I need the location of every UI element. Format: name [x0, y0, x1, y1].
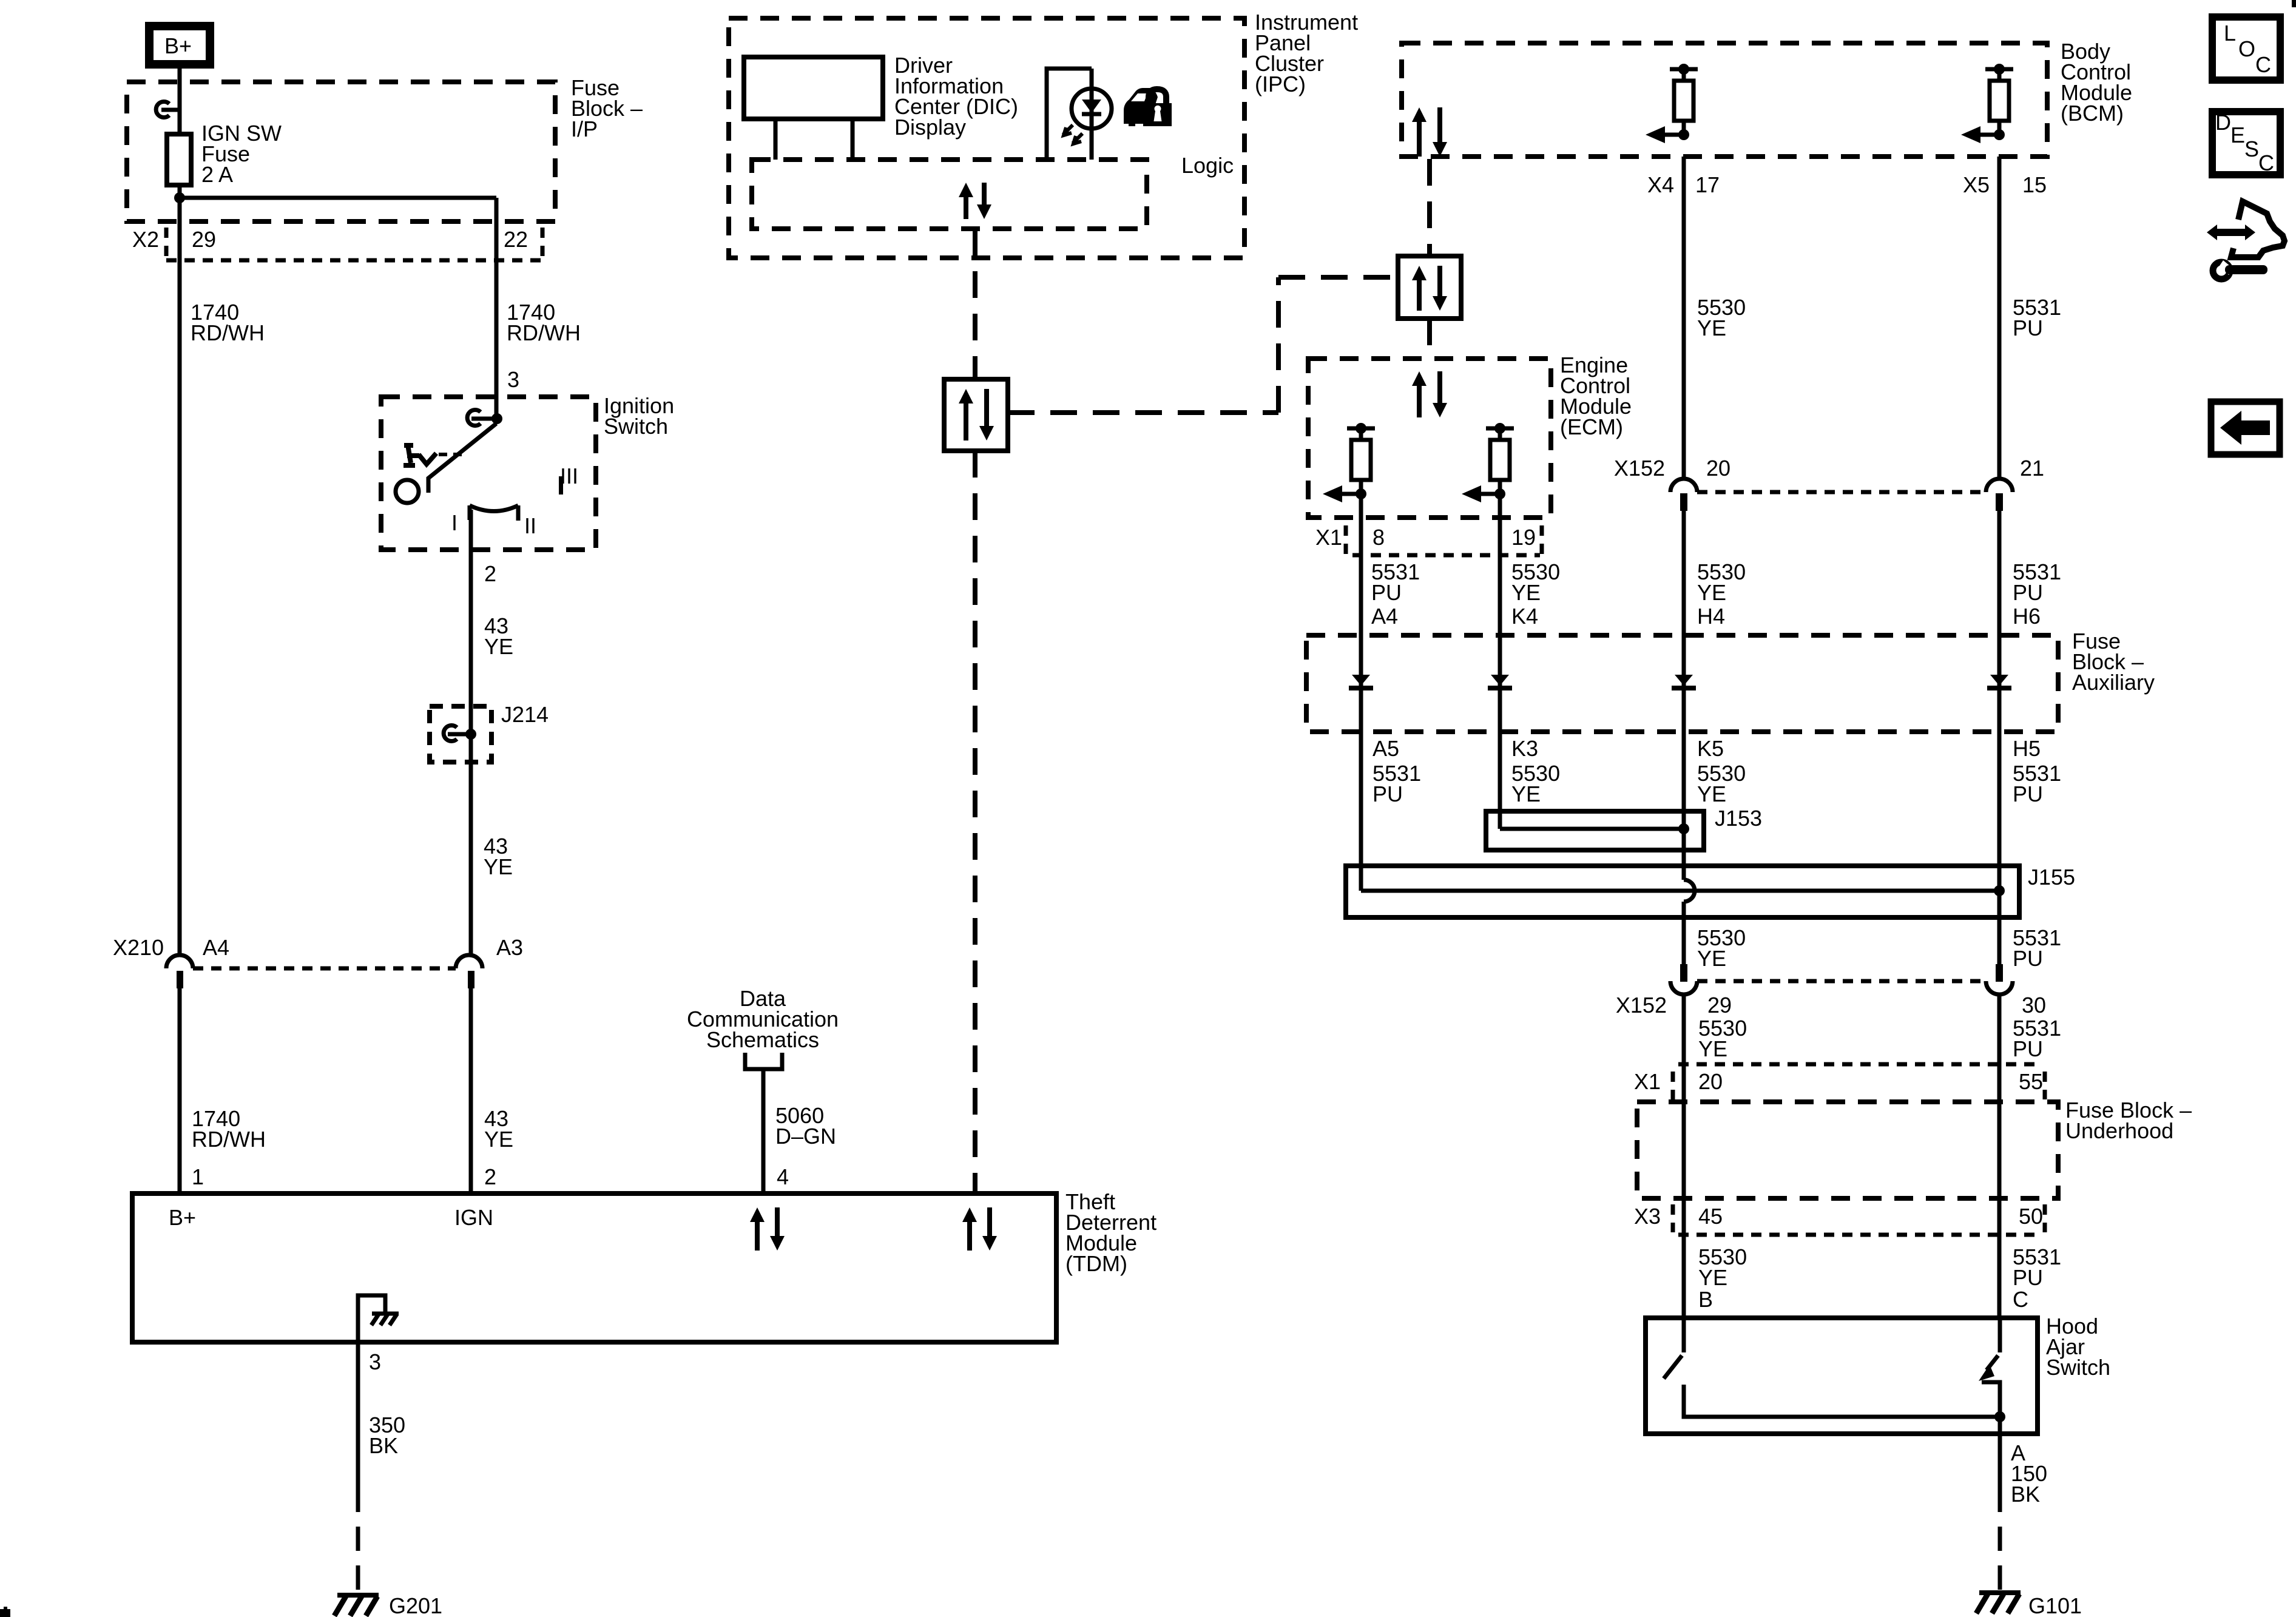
- svg-text:S: S: [2244, 137, 2259, 161]
- svg-text:YE: YE: [484, 1127, 513, 1152]
- svg-text:H4: H4: [1697, 604, 1725, 629]
- svg-text:A4: A4: [1371, 604, 1398, 629]
- svg-text:BK: BK: [2011, 1482, 2040, 1507]
- svg-text:50: 50: [2019, 1204, 2043, 1229]
- svg-text:PU: PU: [2013, 946, 2043, 971]
- svg-text:45: 45: [1698, 1204, 1723, 1229]
- svg-text:K4: K4: [1511, 604, 1538, 629]
- svg-text:H5: H5: [2013, 736, 2041, 761]
- svg-text:PU: PU: [2013, 1036, 2043, 1061]
- svg-text:X152: X152: [1614, 456, 1665, 481]
- svg-text:X210: X210: [113, 935, 164, 960]
- svg-text:20: 20: [1698, 1069, 1723, 1094]
- svg-text:RD/WH: RD/WH: [191, 320, 265, 345]
- svg-text:PU: PU: [1371, 580, 1402, 605]
- svg-text:X1: X1: [1634, 1069, 1661, 1094]
- svg-text:PU: PU: [2013, 1265, 2043, 1290]
- svg-text:O: O: [2238, 36, 2255, 61]
- svg-text:Auxiliary: Auxiliary: [2072, 670, 2155, 695]
- svg-text:I: I: [451, 510, 458, 535]
- svg-text:3: 3: [369, 1349, 381, 1374]
- svg-text:E: E: [2230, 123, 2245, 147]
- svg-text:2: 2: [484, 561, 496, 586]
- svg-text:Switch: Switch: [2046, 1355, 2110, 1380]
- svg-text:Switch: Switch: [604, 414, 668, 439]
- svg-text:L: L: [2224, 21, 2236, 46]
- svg-text:1: 1: [192, 1164, 204, 1189]
- svg-text:Underhood: Underhood: [2065, 1118, 2173, 1143]
- svg-text:C: C: [2258, 150, 2274, 175]
- svg-text:21: 21: [2020, 456, 2044, 481]
- svg-text:19: 19: [1511, 525, 1536, 550]
- svg-text:A3: A3: [496, 935, 523, 960]
- svg-text:PU: PU: [2013, 580, 2043, 605]
- svg-text:C: C: [2013, 1287, 2028, 1312]
- svg-text:(BCM): (BCM): [2061, 101, 2124, 126]
- svg-text:D–GN: D–GN: [775, 1124, 836, 1149]
- svg-text:2: 2: [484, 1164, 496, 1189]
- svg-text:(IPC): (IPC): [1255, 72, 1306, 96]
- svg-text:55: 55: [2019, 1069, 2043, 1094]
- svg-text:I/P: I/P: [571, 116, 598, 141]
- svg-text:Schematics: Schematics: [706, 1027, 819, 1052]
- svg-text:G101: G101: [2028, 1593, 2082, 1617]
- svg-text:29: 29: [1707, 993, 1732, 1018]
- svg-text:PU: PU: [1373, 781, 1403, 806]
- svg-text:30: 30: [2022, 993, 2046, 1018]
- svg-text:X5: X5: [1963, 172, 1990, 197]
- svg-text:22: 22: [504, 227, 528, 252]
- svg-text:29: 29: [192, 227, 216, 252]
- svg-text:(ECM): (ECM): [1560, 414, 1623, 439]
- svg-text:YE: YE: [1697, 580, 1726, 605]
- svg-text:B: B: [1698, 1287, 1713, 1312]
- svg-text:YE: YE: [1697, 316, 1726, 340]
- svg-text:17: 17: [1695, 172, 1720, 197]
- svg-text:G201: G201: [389, 1593, 442, 1617]
- svg-text:A5: A5: [1373, 736, 1399, 761]
- svg-text:YE: YE: [1511, 580, 1541, 605]
- svg-text:II: II: [524, 513, 536, 538]
- svg-text:K3: K3: [1511, 736, 1538, 761]
- svg-text:20: 20: [1706, 456, 1730, 481]
- svg-text:YE: YE: [484, 854, 513, 879]
- svg-text:A4: A4: [203, 935, 229, 960]
- svg-text:B+: B+: [164, 33, 192, 58]
- svg-text:YE: YE: [1511, 781, 1541, 806]
- svg-text:2 A: 2 A: [201, 162, 233, 187]
- svg-text:YE: YE: [1697, 946, 1726, 971]
- svg-text:IGN: IGN: [454, 1205, 493, 1230]
- svg-text:J153: J153: [1715, 806, 1762, 831]
- svg-text:K5: K5: [1697, 736, 1724, 761]
- svg-text:BK: BK: [369, 1433, 398, 1458]
- svg-text:C: C: [2255, 52, 2271, 77]
- svg-text:H6: H6: [2013, 604, 2041, 629]
- svg-text:B+: B+: [169, 1205, 196, 1230]
- svg-text:Logic: Logic: [1181, 153, 1234, 178]
- svg-text:YE: YE: [1697, 781, 1726, 806]
- svg-text:J155: J155: [2028, 865, 2075, 890]
- svg-text:X1: X1: [1315, 525, 1342, 550]
- svg-text:YE: YE: [1698, 1036, 1727, 1061]
- svg-text:J214: J214: [501, 702, 549, 727]
- svg-text:15: 15: [2022, 172, 2047, 197]
- svg-text:PU: PU: [2013, 316, 2043, 340]
- svg-text:X4: X4: [1647, 172, 1674, 197]
- svg-text:4: 4: [777, 1164, 789, 1189]
- svg-text:8: 8: [1373, 525, 1385, 550]
- svg-text:RD/WH: RD/WH: [507, 320, 581, 345]
- svg-text:RD/WH: RD/WH: [192, 1127, 266, 1152]
- svg-text:PU: PU: [2013, 781, 2043, 806]
- svg-text:YE: YE: [484, 634, 513, 659]
- svg-text:3: 3: [507, 367, 519, 392]
- svg-text:YE: YE: [1698, 1265, 1727, 1290]
- svg-text:X3: X3: [1634, 1204, 1661, 1229]
- svg-text:X152: X152: [1616, 993, 1667, 1018]
- svg-text:D: D: [2215, 110, 2231, 135]
- svg-text:Display: Display: [894, 115, 966, 140]
- svg-text:X2: X2: [132, 227, 159, 252]
- svg-text:(TDM): (TDM): [1065, 1251, 1127, 1276]
